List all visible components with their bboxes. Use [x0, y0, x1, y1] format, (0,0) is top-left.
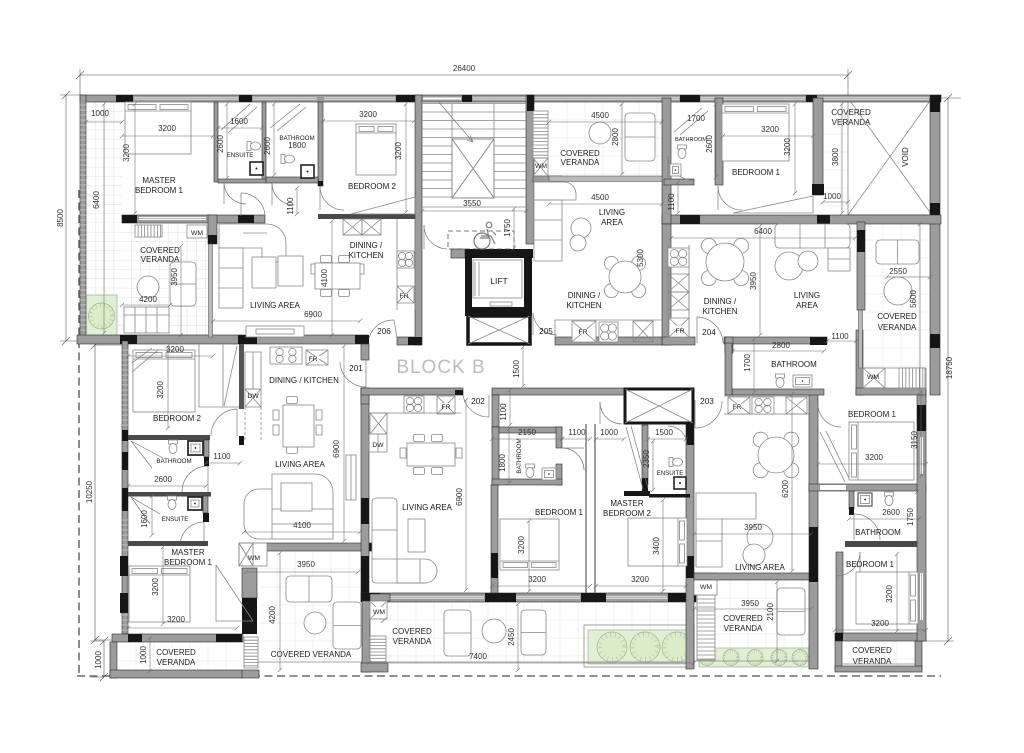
svg-text:201: 201 [349, 364, 363, 373]
svg-text:WM: WM [191, 230, 203, 237]
svg-text:LIVING AREA: LIVING AREA [275, 460, 325, 469]
svg-text:COVERED: COVERED [831, 108, 871, 117]
svg-text:3200: 3200 [156, 381, 165, 399]
svg-text:3200: 3200 [783, 138, 792, 156]
svg-text:VERANDA: VERANDA [561, 158, 600, 167]
svg-text:LIVING AREA: LIVING AREA [250, 301, 300, 310]
svg-text:1100: 1100 [213, 452, 231, 461]
svg-text:3200: 3200 [394, 142, 403, 160]
svg-text:2800: 2800 [611, 128, 620, 146]
svg-text:3950: 3950 [170, 268, 179, 286]
svg-text:ENSUITE: ENSUITE [227, 152, 254, 159]
svg-text:BEDROOM 1: BEDROOM 1 [135, 186, 184, 195]
svg-text:2450: 2450 [507, 628, 516, 646]
svg-text:18750: 18750 [945, 356, 954, 379]
svg-text:VERANDA: VERANDA [157, 658, 196, 667]
svg-text:BATHROOM: BATHROOM [771, 360, 817, 369]
svg-text:BEDROOM 1: BEDROOM 1 [848, 410, 897, 419]
svg-text:3400: 3400 [652, 537, 661, 555]
svg-text:3200: 3200 [359, 110, 377, 119]
svg-text:6400: 6400 [92, 191, 101, 209]
svg-text:1500: 1500 [655, 428, 673, 437]
svg-text:202: 202 [471, 397, 485, 406]
svg-text:4500: 4500 [591, 193, 609, 202]
svg-text:COVERED: COVERED [852, 646, 892, 655]
svg-text:COVERED: COVERED [560, 149, 600, 158]
svg-text:3200: 3200 [631, 575, 649, 584]
svg-text:ENSUITE: ENSUITE [657, 470, 684, 477]
svg-text:VERANDA: VERANDA [878, 323, 917, 332]
svg-text:FR: FR [675, 328, 684, 335]
svg-text:3200: 3200 [517, 536, 526, 554]
svg-text:WM: WM [700, 584, 712, 591]
svg-text:3950: 3950 [297, 560, 315, 569]
svg-text:3550: 3550 [463, 199, 481, 208]
svg-text:3950: 3950 [744, 523, 762, 532]
svg-text:3200: 3200 [761, 125, 779, 134]
svg-text:1700: 1700 [743, 354, 752, 372]
svg-text:1600: 1600 [230, 117, 248, 126]
svg-text:1700: 1700 [687, 114, 705, 123]
svg-text:1100: 1100 [286, 197, 295, 215]
svg-text:2600: 2600 [263, 137, 272, 155]
svg-text:COVERED: COVERED [723, 614, 763, 623]
svg-text:1600: 1600 [140, 510, 149, 528]
svg-text:KITCHEN: KITCHEN [702, 307, 737, 316]
svg-text:KITCHEN: KITCHEN [566, 301, 601, 310]
svg-text:BEDROOM 2: BEDROOM 2 [153, 414, 202, 423]
svg-text:COVERED: COVERED [392, 627, 432, 636]
svg-text:5300: 5300 [636, 249, 645, 267]
svg-text:COVERED: COVERED [140, 246, 180, 255]
svg-text:BLOCK B: BLOCK B [396, 357, 485, 378]
svg-text:WM: WM [535, 163, 547, 170]
svg-text:6200: 6200 [781, 480, 790, 498]
svg-text:3950: 3950 [741, 599, 759, 608]
svg-text:LIVING AREA: LIVING AREA [402, 503, 452, 512]
svg-text:1750: 1750 [503, 219, 512, 237]
svg-text:4200: 4200 [268, 606, 277, 624]
svg-text:VERANDA: VERANDA [853, 657, 892, 666]
svg-text:1000: 1000 [94, 651, 103, 669]
svg-text:2600: 2600 [216, 135, 225, 153]
svg-text:7400: 7400 [469, 652, 487, 661]
svg-text:FR: FR [578, 329, 587, 336]
svg-text:3200: 3200 [151, 578, 160, 596]
svg-text:VERANDA: VERANDA [832, 118, 871, 127]
svg-text:BEDROOM 1: BEDROOM 1 [164, 558, 213, 567]
svg-text:MASTER: MASTER [142, 176, 176, 185]
svg-text:3200: 3200 [528, 575, 546, 584]
svg-text:1100: 1100 [831, 332, 849, 341]
svg-text:DINING / KITCHEN: DINING / KITCHEN [269, 376, 339, 385]
svg-text:2800: 2800 [772, 341, 790, 350]
svg-text:3150: 3150 [910, 431, 919, 449]
svg-text:3950: 3950 [749, 272, 758, 290]
svg-text:206: 206 [377, 327, 391, 336]
svg-text:FR: FR [441, 404, 450, 411]
svg-text:BATHROOM: BATHROOM [156, 458, 191, 465]
svg-text:BATHROOM: BATHROOM [516, 438, 523, 473]
svg-text:4100: 4100 [293, 521, 311, 530]
svg-text:4200: 4200 [139, 295, 157, 304]
svg-text:1000: 1000 [600, 428, 618, 437]
svg-text:26400: 26400 [453, 64, 476, 73]
svg-text:BEDROOM 1: BEDROOM 1 [535, 508, 584, 517]
svg-text:3200: 3200 [885, 585, 894, 603]
svg-text:1000: 1000 [91, 109, 109, 118]
svg-text:WM: WM [373, 609, 385, 616]
svg-text:LIVING: LIVING [794, 291, 820, 300]
svg-text:4100: 4100 [320, 269, 329, 287]
svg-text:VERANDA: VERANDA [724, 624, 763, 633]
svg-text:4500: 4500 [591, 111, 609, 120]
svg-text:AREA: AREA [601, 218, 623, 227]
svg-text:FR: FR [399, 293, 408, 300]
svg-text:BEDROOM 1: BEDROOM 1 [732, 168, 781, 177]
svg-text:205: 205 [539, 327, 553, 336]
svg-text:2100: 2100 [766, 603, 775, 621]
svg-text:DINING /: DINING / [350, 241, 383, 250]
svg-text:2600: 2600 [882, 508, 900, 517]
svg-text:3200: 3200 [122, 144, 131, 162]
svg-text:1500: 1500 [512, 360, 521, 378]
svg-text:AREA: AREA [796, 301, 818, 310]
svg-text:ENSUITE: ENSUITE [162, 516, 189, 523]
svg-text:3200: 3200 [167, 615, 185, 624]
svg-text:BEDROOM 2: BEDROOM 2 [348, 182, 397, 191]
svg-text:1000: 1000 [823, 192, 841, 201]
svg-text:1750: 1750 [906, 508, 915, 526]
svg-text:2150: 2150 [518, 428, 536, 437]
svg-text:LIVING: LIVING [599, 208, 625, 217]
svg-text:203: 203 [700, 397, 714, 406]
svg-text:10250: 10250 [85, 480, 94, 503]
svg-text:1000: 1000 [139, 646, 148, 664]
svg-text:MASTER: MASTER [610, 499, 644, 508]
svg-text:3200: 3200 [871, 619, 889, 628]
svg-text:DW: DW [247, 393, 259, 400]
svg-text:LIFT: LIFT [490, 276, 507, 286]
svg-text:2350: 2350 [642, 450, 651, 468]
svg-text:WM: WM [867, 374, 879, 381]
svg-text:FR: FR [308, 356, 317, 363]
svg-text:1100: 1100 [499, 403, 508, 421]
svg-text:BEDROOM 1: BEDROOM 1 [846, 560, 895, 569]
svg-text:3800: 3800 [831, 148, 840, 166]
svg-text:DINING /: DINING / [568, 291, 601, 300]
svg-text:1100: 1100 [568, 428, 586, 437]
svg-text:BEDROOM 2: BEDROOM 2 [603, 509, 652, 518]
svg-text:2600: 2600 [154, 475, 172, 484]
svg-text:KITCHEN: KITCHEN [348, 251, 383, 260]
svg-text:FR: FR [732, 404, 741, 411]
svg-text:BATHROOM: BATHROOM [855, 528, 901, 537]
svg-text:DINING /: DINING / [704, 297, 737, 306]
svg-text:6900: 6900 [332, 440, 341, 458]
svg-text:LIVING AREA: LIVING AREA [735, 563, 785, 572]
svg-text:COVERED: COVERED [156, 648, 196, 657]
svg-text:DW: DW [372, 442, 384, 449]
svg-text:WM: WM [248, 555, 260, 562]
svg-text:COVERED: COVERED [877, 312, 917, 321]
svg-text:BATHROOM: BATHROOM [675, 137, 707, 143]
svg-text:204: 204 [702, 328, 716, 337]
svg-text:3200: 3200 [865, 453, 883, 462]
svg-text:MASTER: MASTER [171, 548, 205, 557]
svg-text:VERANDA: VERANDA [393, 637, 432, 646]
svg-text:COVERED VERANDA: COVERED VERANDA [271, 650, 352, 659]
svg-text:8500: 8500 [56, 209, 65, 227]
svg-text:6400: 6400 [754, 227, 772, 236]
svg-text:1800: 1800 [498, 454, 507, 472]
svg-text:1100: 1100 [667, 193, 676, 211]
svg-text:2550: 2550 [889, 267, 907, 276]
svg-text:VOID: VOID [901, 147, 910, 167]
svg-text:3200: 3200 [166, 345, 184, 354]
svg-text:5600: 5600 [909, 290, 918, 308]
svg-text:1800: 1800 [288, 141, 306, 150]
svg-text:2600: 2600 [705, 135, 714, 153]
svg-text:3200: 3200 [158, 124, 176, 133]
svg-text:6900: 6900 [455, 488, 464, 506]
svg-text:6900: 6900 [304, 310, 322, 319]
